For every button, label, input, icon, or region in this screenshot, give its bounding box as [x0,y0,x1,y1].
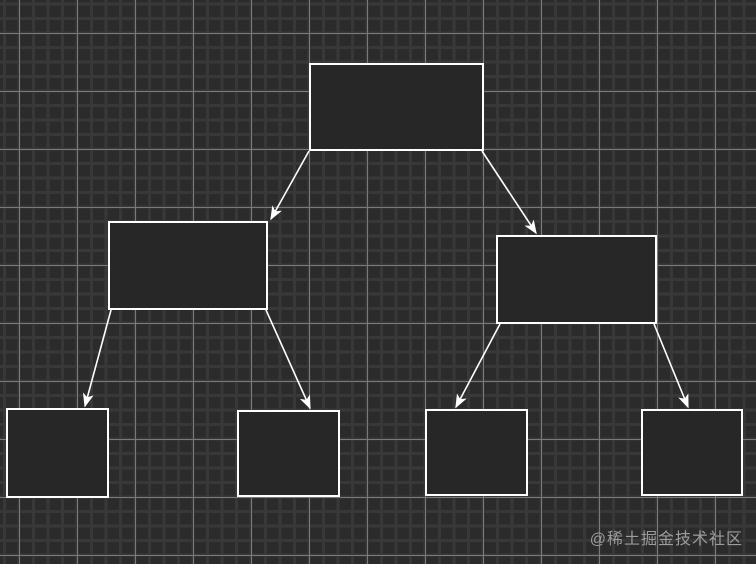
flow-edge-child-right-to-leaf-4 [654,324,688,407]
flow-node-root [310,64,483,150]
nodes-group [7,64,742,497]
watermark: @稀土掘金技术社区 [590,525,743,549]
flow-edge-root-to-child-left [271,151,309,219]
flow-edge-root-to-child-right [482,151,536,233]
flowchart-layer [0,0,756,564]
flow-node-child-left [109,222,267,309]
flow-edge-child-left-to-leaf-1 [85,310,111,406]
diagram-canvas: @稀土掘金技术社区 [0,0,756,564]
flow-node-child-right [497,236,656,323]
flow-edge-child-left-to-leaf-2 [266,310,310,408]
flow-node-leaf-1 [7,409,108,497]
flow-node-leaf-3 [426,410,527,495]
flow-edge-child-right-to-leaf-3 [456,324,500,407]
flow-node-leaf-4 [642,410,742,495]
flow-node-leaf-2 [238,411,339,496]
